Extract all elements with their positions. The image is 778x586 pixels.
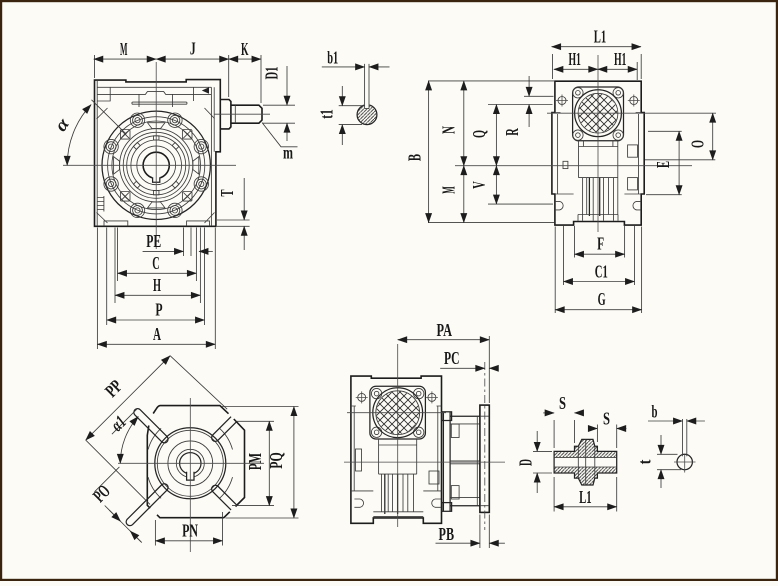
svg-text:b: b — [652, 402, 658, 422]
svg-text:PN: PN — [182, 520, 198, 540]
svg-text:P: P — [155, 300, 162, 320]
svg-text:PA: PA — [437, 320, 453, 340]
svg-text:m: m — [283, 143, 293, 163]
svg-text:E: E — [653, 161, 673, 168]
svg-text:b1: b1 — [327, 48, 338, 68]
svg-text:S: S — [559, 393, 566, 413]
svg-text:L1: L1 — [579, 487, 592, 507]
svg-text:D1: D1 — [262, 67, 282, 80]
svg-text:PB: PB — [439, 524, 455, 544]
svg-text:PE: PE — [146, 231, 161, 251]
svg-text:S: S — [603, 409, 610, 429]
svg-text:B: B — [405, 154, 425, 161]
svg-text:t: t — [635, 460, 655, 465]
svg-text:C1: C1 — [595, 262, 608, 282]
svg-text:D: D — [516, 459, 536, 466]
svg-text:R: R — [502, 128, 522, 136]
svg-text:PC: PC — [444, 348, 460, 368]
svg-text:O: O — [688, 140, 708, 148]
svg-text:H1: H1 — [614, 49, 627, 69]
svg-text:F: F — [597, 234, 604, 254]
svg-text:Q: Q — [469, 130, 489, 138]
svg-text:T: T — [217, 190, 237, 197]
svg-text:V: V — [469, 181, 489, 189]
svg-text:H1: H1 — [568, 49, 581, 69]
svg-text:G: G — [598, 289, 606, 309]
svg-text:C: C — [152, 253, 160, 273]
svg-text:H: H — [153, 275, 161, 295]
svg-text:K: K — [241, 39, 249, 59]
svg-text:J: J — [190, 39, 196, 59]
svg-text:A: A — [153, 324, 161, 344]
svg-text:M: M — [439, 186, 459, 194]
svg-text:N: N — [439, 126, 459, 134]
svg-text:M: M — [120, 39, 128, 59]
svg-text:t1: t1 — [316, 109, 336, 119]
svg-text:L1: L1 — [594, 27, 607, 47]
svg-text:PM: PM — [245, 453, 265, 470]
